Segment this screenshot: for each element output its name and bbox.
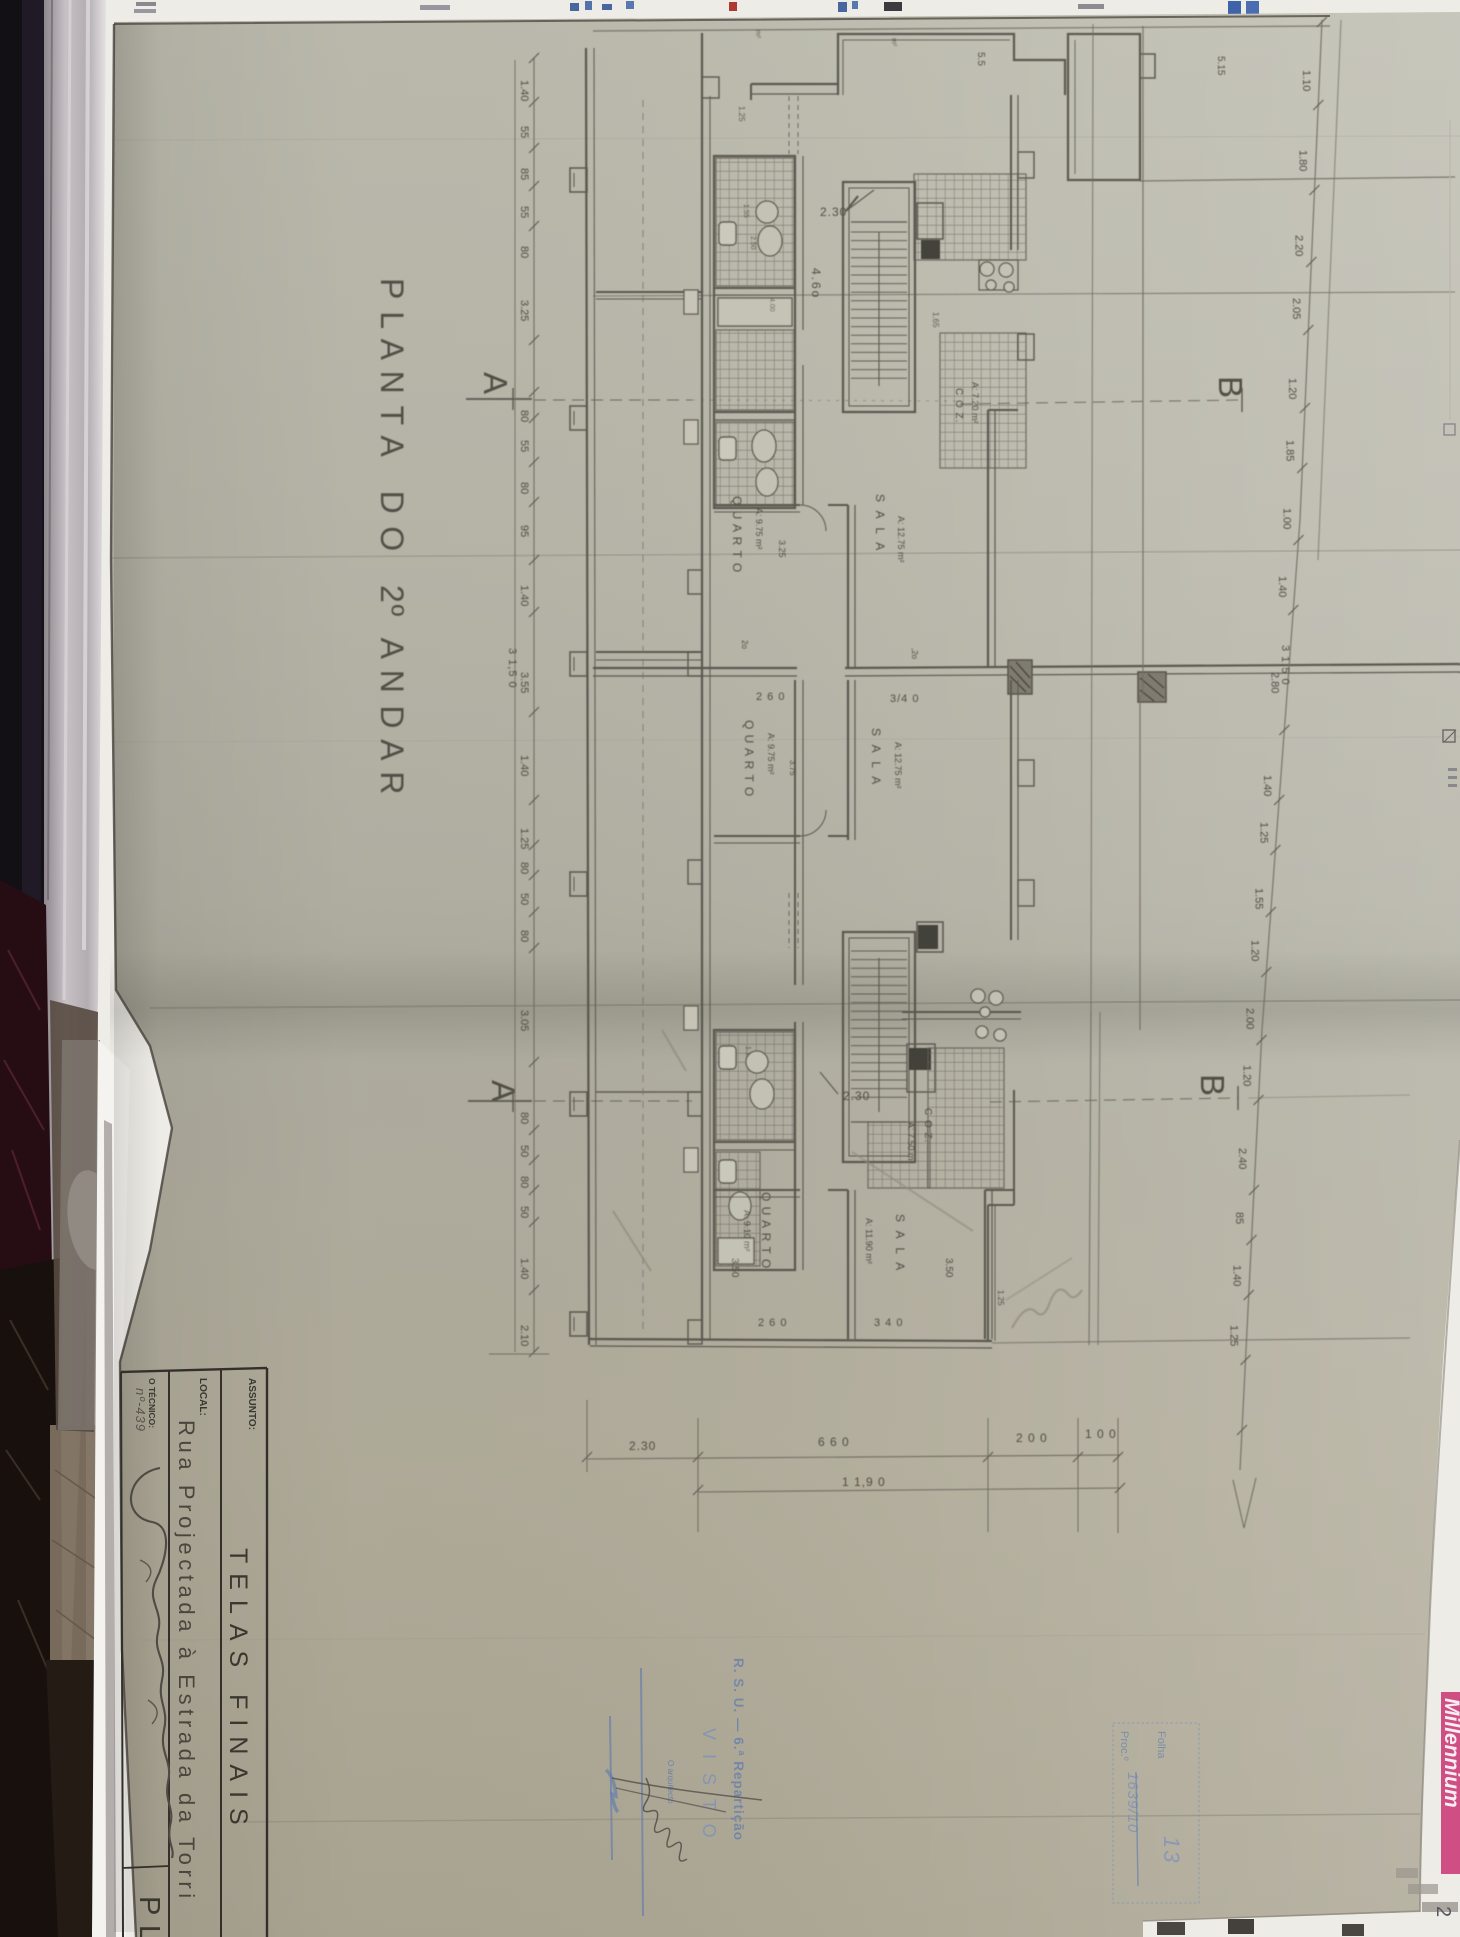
svg-text:80: 80 [518, 1176, 530, 1188]
svg-text:1.40: 1.40 [518, 585, 530, 606]
svg-text:2.05: 2.05 [1290, 298, 1302, 319]
svg-text:C O Z.: C O Z. [953, 388, 964, 423]
svg-text:nº-439: nº-439 [133, 1388, 148, 1432]
svg-text:1.40: 1.40 [518, 1258, 530, 1279]
svg-text:P L A N T A D O 2º A N D: P L A N T A D O 2º A N D A R [374, 278, 410, 796]
svg-text:55: 55 [518, 206, 530, 218]
svg-text:3 4 0: 3 4 0 [874, 1317, 903, 1329]
svg-text:1 0 0: 1 0 0 [1085, 1427, 1117, 1441]
svg-text:2 6 0: 2 6 0 [756, 691, 785, 703]
svg-text:Folha: Folha [1155, 1731, 1167, 1759]
svg-text:3 1,5 0: 3 1,5 0 [1279, 645, 1291, 686]
svg-text:1.25: 1.25 [1257, 822, 1269, 843]
svg-text:A: 9.75 m²: A: 9.75 m² [766, 733, 776, 775]
svg-text:1.40: 1.40 [518, 755, 530, 776]
svg-text:Q U A R T O: Q U A R T O [742, 720, 756, 797]
svg-text:2.00: 2.00 [1244, 1008, 1256, 1029]
svg-text:2: 2 [1432, 1906, 1454, 1917]
svg-text:Millennium: Millennium [1440, 1698, 1460, 1808]
svg-text:LOCAL:: LOCAL: [197, 1378, 208, 1416]
svg-text:1.25: 1.25 [737, 106, 746, 122]
svg-text:5.15: 5.15 [1215, 56, 1226, 76]
svg-text:1.40: 1.40 [1230, 1265, 1242, 1286]
svg-text:3.50: 3.50 [943, 1258, 954, 1278]
svg-text:3/4 0: 3/4 0 [890, 693, 919, 705]
svg-text:A: 9.10 m²: A: 9.10 m² [742, 1210, 752, 1252]
svg-text:B: B [1194, 1074, 1231, 1096]
svg-text:1.55: 1.55 [1253, 888, 1265, 909]
svg-text:1.20: 1.20 [1286, 378, 1298, 399]
svg-text:R. S. U. — 6.ª Repartição: R. S. U. — 6.ª Repartição [731, 1658, 746, 1841]
svg-text:2.10: 2.10 [518, 1325, 530, 1346]
svg-text:S A L A: S A L A [893, 1214, 907, 1273]
svg-text:ASSUNTO:: ASSUNTO: [246, 1378, 257, 1430]
svg-text:3.50: 3.50 [729, 1258, 740, 1278]
svg-text:A: 12.75 m²: A: 12.75 m² [893, 742, 903, 789]
svg-text:1.10: 1.10 [1300, 70, 1312, 91]
svg-text:2.30: 2.30 [843, 1089, 870, 1103]
svg-text:50: 50 [518, 1145, 530, 1157]
svg-text:,2o: ,2o [910, 648, 919, 660]
svg-text:1.25: 1.25 [996, 1290, 1005, 1306]
svg-text:3.25: 3.25 [518, 300, 530, 321]
svg-text:Rua Projectada à Estrada da To: Rua Projectada à Estrada da Torri [174, 1420, 199, 1903]
svg-text:2o: 2o [740, 640, 749, 649]
svg-text:3.75: 3.75 [788, 760, 797, 776]
svg-text:85: 85 [1233, 1212, 1245, 1224]
svg-text:1.80: 1.80 [1296, 150, 1308, 171]
svg-text:m²: m² [890, 38, 897, 47]
svg-text:1 1,9 0: 1 1,9 0 [842, 1475, 886, 1489]
svg-text:55: 55 [518, 126, 530, 138]
svg-text:A: A [477, 372, 514, 394]
svg-text:A: 7.20 m²: A: 7.20 m² [970, 382, 980, 424]
svg-text:A: A [485, 1080, 522, 1102]
svg-text:1.40: 1.40 [1261, 775, 1273, 796]
svg-text:m²: m² [754, 30, 761, 39]
svg-text:TELAS FINAIS: TELAS FINAIS [224, 1548, 252, 1835]
svg-text:6 6 0: 6 6 0 [818, 1435, 850, 1449]
svg-text:1639/10: 1639/10 [1124, 1772, 1141, 1833]
svg-text:A: 12.75 m²: A: 12.75 m² [896, 516, 906, 563]
svg-text:1.40: 1.40 [1276, 576, 1288, 597]
svg-text:S A L A: S A L A [869, 728, 883, 787]
svg-text:95: 95 [518, 525, 530, 537]
svg-text:2.50: 2.50 [749, 236, 756, 250]
svg-text:2.20: 2.20 [1293, 235, 1305, 256]
svg-text:2.80: 2.80 [1269, 672, 1281, 693]
svg-text:50: 50 [518, 893, 530, 905]
svg-text:85: 85 [518, 168, 530, 180]
svg-text:2.30: 2.30 [629, 1439, 656, 1453]
svg-text:80: 80 [518, 930, 530, 942]
svg-text:80: 80 [518, 482, 530, 494]
svg-text:1.40: 1.40 [518, 80, 530, 101]
svg-text:3.25: 3.25 [777, 540, 787, 558]
svg-text:Q U A R T O: Q U A R T O [759, 1192, 773, 1269]
svg-text:O arquitecto: O arquitecto [666, 1760, 675, 1804]
svg-text:80: 80 [518, 1112, 530, 1124]
svg-text:A: 11.90 m²: A: 11.90 m² [864, 1218, 874, 1264]
svg-text:4.6o: 4.6o [809, 268, 823, 299]
svg-text:1.25: 1.25 [518, 828, 530, 849]
svg-text:A: 7.50 m²: A: 7.50 m² [906, 1122, 916, 1164]
svg-text:B: B [1212, 376, 1249, 398]
svg-text:2 6 0: 2 6 0 [758, 1317, 787, 1329]
svg-text:1.20: 1.20 [1249, 940, 1261, 961]
svg-text:4.00: 4.00 [768, 298, 775, 312]
svg-text:S A L A: S A L A [873, 494, 887, 553]
svg-text:2 0 0: 2 0 0 [1016, 1431, 1048, 1445]
svg-text:Proc.º: Proc.º [1118, 1731, 1130, 1761]
svg-text:3 1,5 0: 3 1,5 0 [506, 648, 518, 689]
svg-text:13: 13 [1159, 1836, 1184, 1864]
svg-text:2.40: 2.40 [1236, 1148, 1248, 1169]
svg-text:1.20: 1.20 [1240, 1065, 1252, 1086]
svg-text:C O Z.: C O Z. [922, 1108, 933, 1143]
svg-text:VISTO: VISTO [699, 1728, 719, 1852]
svg-text:1.00: 1.00 [1281, 508, 1293, 529]
svg-text:1.85: 1.85 [1284, 440, 1296, 461]
svg-text:5.5: 5.5 [975, 52, 986, 66]
svg-text:55: 55 [518, 440, 530, 452]
svg-text:Q U A R T O: Q U A R T O [730, 496, 744, 573]
svg-text:A: 9.75 m²: A: 9.75 m² [754, 508, 764, 550]
svg-text:80: 80 [518, 246, 530, 258]
svg-text:50: 50 [518, 1206, 530, 1218]
svg-text:3.05: 3.05 [518, 1010, 530, 1031]
svg-text:3.55: 3.55 [518, 672, 530, 693]
svg-text:80: 80 [518, 862, 530, 874]
svg-text:P L: P L [133, 1896, 165, 1937]
svg-text:1.25: 1.25 [1227, 1325, 1239, 1346]
svg-text:1.65: 1.65 [931, 312, 940, 328]
svg-text:1.55: 1.55 [742, 204, 749, 218]
svg-text:80: 80 [518, 410, 530, 422]
